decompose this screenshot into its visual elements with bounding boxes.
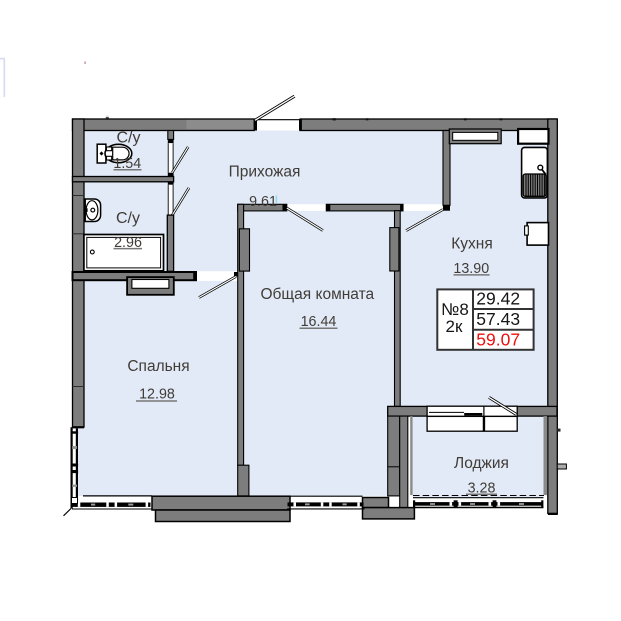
svg-text:Прихожая: Прихожая bbox=[229, 164, 301, 181]
svg-text:29.42: 29.42 bbox=[476, 289, 520, 309]
svg-text:Кухня: Кухня bbox=[451, 236, 492, 253]
svg-text:57.43: 57.43 bbox=[476, 309, 520, 329]
svg-text:2к: 2к bbox=[446, 317, 463, 336]
svg-text:Спальня: Спальня bbox=[127, 358, 189, 375]
svg-text:Лоджия: Лоджия bbox=[454, 455, 509, 472]
svg-text:С/у: С/у bbox=[117, 130, 141, 147]
svg-text:Общая комната: Общая комната bbox=[260, 286, 374, 303]
svg-text:12.98: 12.98 bbox=[139, 387, 175, 403]
svg-text:59.07: 59.07 bbox=[476, 330, 520, 350]
svg-text:С/у: С/у bbox=[116, 210, 140, 227]
